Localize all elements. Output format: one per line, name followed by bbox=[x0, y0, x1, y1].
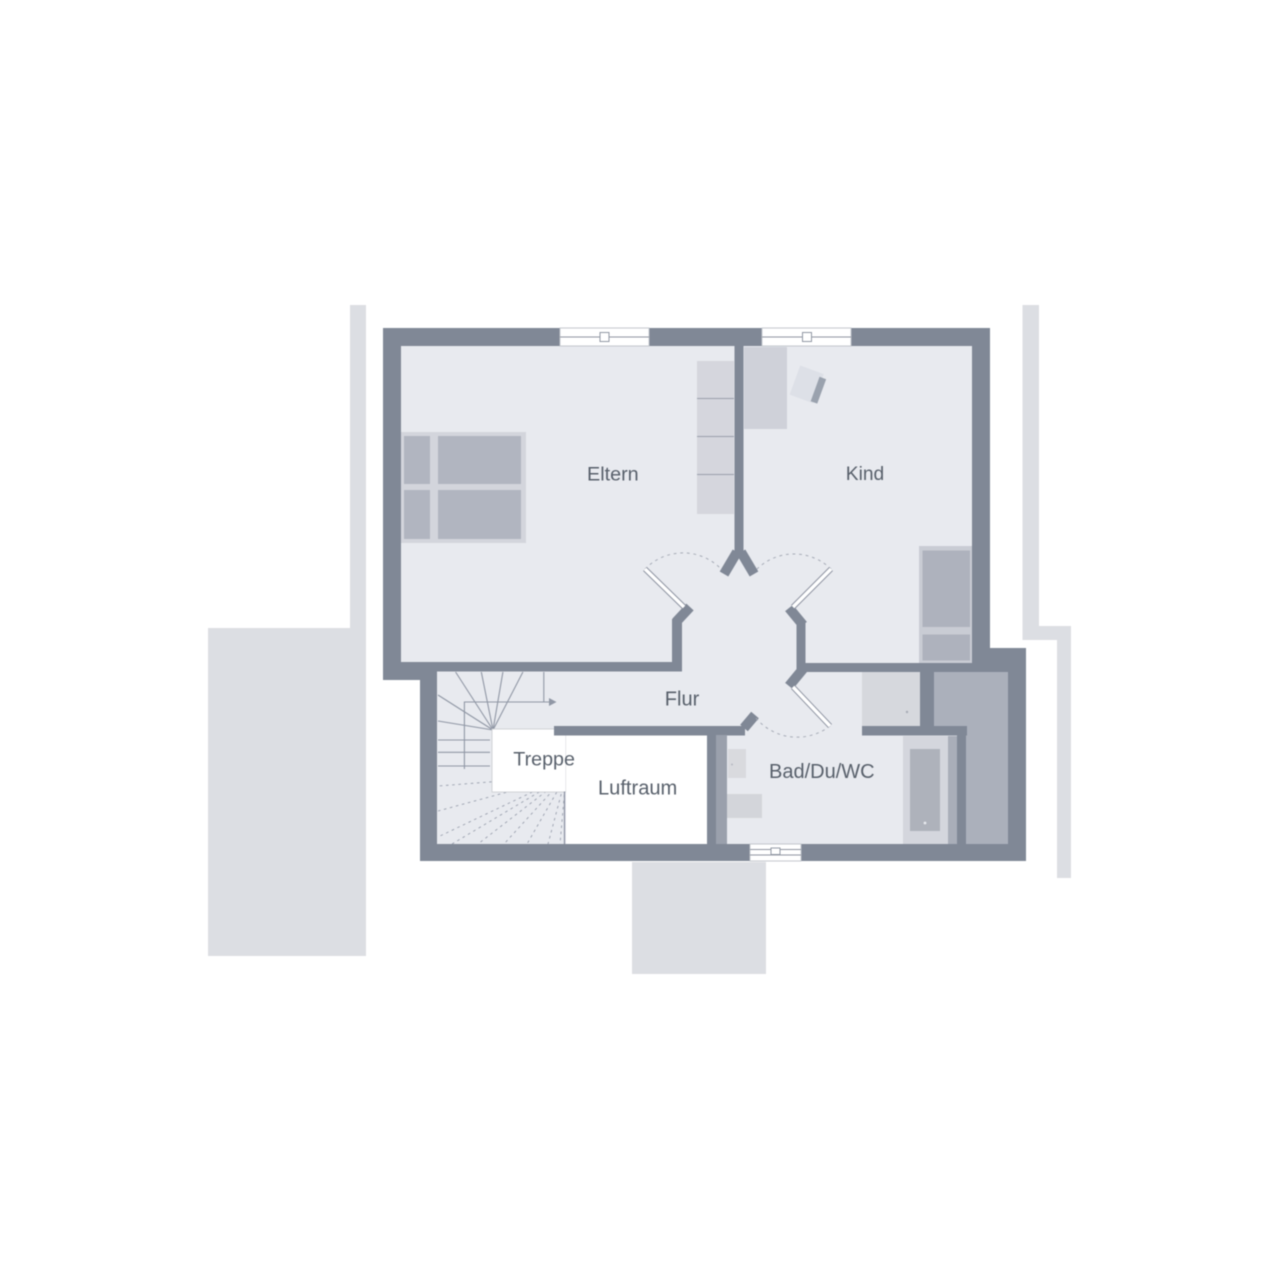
svg-text:Treppe: Treppe bbox=[513, 749, 575, 771]
svg-text:Kind: Kind bbox=[846, 464, 884, 485]
svg-text:Eltern: Eltern bbox=[587, 464, 639, 486]
svg-text:Bad/Du/WC: Bad/Du/WC bbox=[769, 761, 875, 783]
svg-text:Flur: Flur bbox=[665, 689, 700, 711]
svg-text:Luftraum: Luftraum bbox=[598, 778, 677, 800]
